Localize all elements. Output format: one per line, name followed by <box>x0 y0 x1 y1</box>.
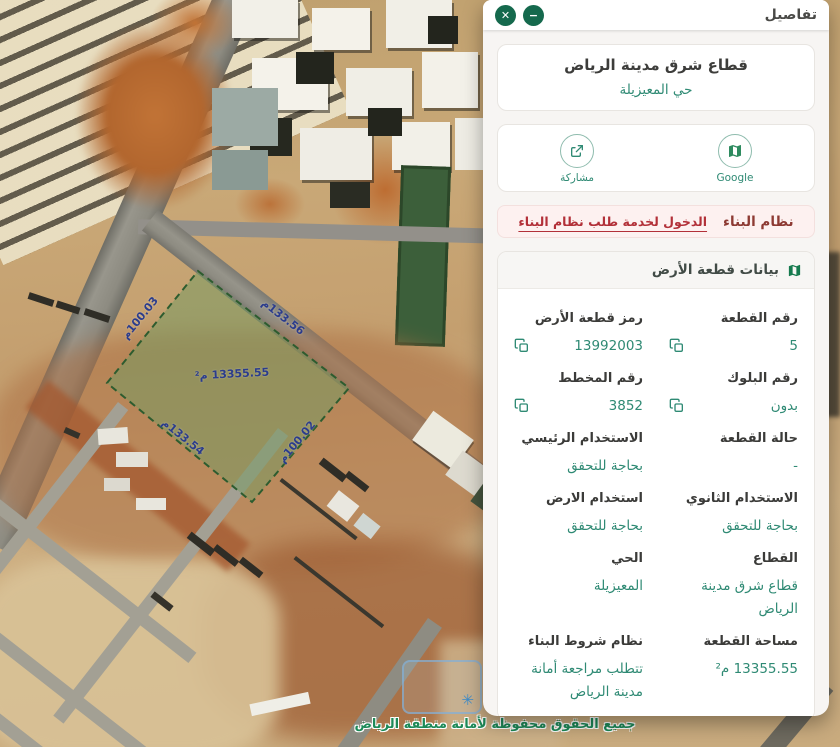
panel-title: تفاصيل <box>765 7 817 23</box>
close-icon: ✕ <box>501 10 510 21</box>
field-land-use: استخدام الارض بحاجة للتحقق <box>514 491 643 538</box>
land-data-fields: رقم القطعة 5 رمز قطعة الأرض 13992003 <box>498 289 814 716</box>
field-parcel-code: رمز قطعة الأرض 13992003 <box>514 311 643 358</box>
details-panel: تفاصيل − ✕ قطاع شرق مدينة الرياض حي المع… <box>483 0 829 716</box>
copy-icon[interactable] <box>514 398 530 414</box>
google-label: Google <box>716 172 753 184</box>
window-buttons: − ✕ <box>495 5 544 26</box>
copy-icon[interactable] <box>669 338 685 354</box>
land-data-header: بيانات قطعة الأرض <box>498 252 814 289</box>
share-icon <box>560 134 594 168</box>
copyright-watermark: جميع الحقوق محفوظة لأمانة منطقة الرياض <box>330 717 660 732</box>
map-icon <box>787 263 802 278</box>
land-data-title: بيانات قطعة الأرض <box>652 262 779 278</box>
copy-icon[interactable] <box>514 338 530 354</box>
field-parcel-status: حالة القطعة - <box>669 431 798 478</box>
panel-titlebar: تفاصيل − ✕ <box>483 0 829 30</box>
close-button[interactable]: ✕ <box>495 5 516 26</box>
screen: 100.03م 133.56م 133.54م 100.02م 13355.55… <box>0 0 840 747</box>
registered-watermark: ✳ <box>402 660 482 714</box>
share-label: مشاركة <box>560 172 594 184</box>
building-system-label: نظام البناء <box>723 214 794 230</box>
registered-logo-icon: ✳ <box>461 691 474 709</box>
field-sector: القطاع قطاع شرق مدينة الرياض <box>669 551 798 621</box>
location-card: قطاع شرق مدينة الرياض حي المعيزيلة <box>497 44 815 111</box>
field-block-number: رقم البلوك بدون <box>669 371 798 418</box>
land-data-card: بيانات قطعة الأرض رقم القطعة 5 رمز قطعة … <box>497 251 815 716</box>
google-button[interactable]: Google <box>656 134 814 184</box>
building-system-link[interactable]: الدخول لخدمة طلب نظام البناء <box>518 214 707 229</box>
field-parcel-number: رقم القطعة 5 <box>669 311 798 358</box>
field-district: الحي المعيزيلة <box>514 551 643 621</box>
field-secondary-use: الاستخدام الثانوي بحاجة للتحقق <box>669 491 798 538</box>
field-plan-number: رقم المخطط 3852 <box>514 371 643 418</box>
copy-icon[interactable] <box>669 398 685 414</box>
actions-card: Google مشاركة <box>497 124 815 192</box>
field-building-regulations: نظام شروط البناء تتطلب مراجعة أمانة مدين… <box>514 634 643 704</box>
sector-title: قطاع شرق مدينة الرياض <box>506 56 806 74</box>
google-maps-icon <box>718 134 752 168</box>
district-subtitle: حي المعيزيلة <box>506 82 806 98</box>
building-system-banner: نظام البناء الدخول لخدمة طلب نظام البناء <box>497 205 815 238</box>
panel-body: قطاع شرق مدينة الرياض حي المعيزيلة Googl… <box>483 30 829 716</box>
minimize-icon: − <box>529 10 538 21</box>
share-button[interactable]: مشاركة <box>498 134 656 184</box>
field-main-use: الاستخدام الرئيسي بحاجة للتحقق <box>514 431 643 478</box>
field-parcel-area: مساحة القطعة 13355.55 م² <box>669 634 798 704</box>
minimize-button[interactable]: − <box>523 5 544 26</box>
